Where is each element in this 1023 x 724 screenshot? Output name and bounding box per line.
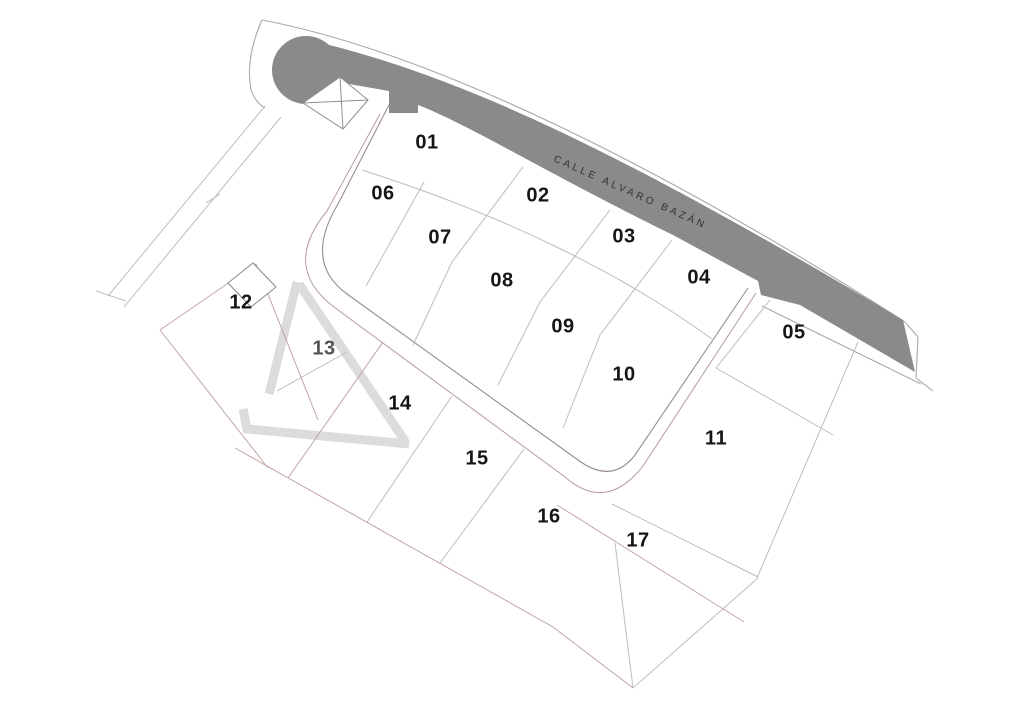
lot-divider-06-07 — [366, 182, 424, 286]
site-plan-drawing: CALLE ALVARO BAZÁN — [0, 0, 1023, 724]
parcel-lines-gray — [96, 106, 858, 688]
street-surface — [272, 36, 915, 372]
street-bulb-outline — [249, 20, 265, 108]
lot13-inner-line — [277, 352, 347, 391]
east-boundary-line — [757, 342, 858, 578]
watermark-right-stroke — [299, 284, 405, 441]
lot-divider-15-16 — [440, 449, 524, 563]
lot-divider-03-04 — [563, 240, 672, 428]
west-strip-line-1 — [108, 106, 265, 296]
watermark-left-stroke — [269, 282, 297, 394]
lot-divider-13-14 — [288, 342, 383, 478]
site-plan: CALLE ALVARO BAZÁN 010203040506070809101… — [0, 0, 1023, 724]
outer-lane-line — [306, 114, 756, 493]
lot12-west-edge — [160, 330, 268, 468]
lane-continuation-north — [612, 504, 758, 577]
lot-divider-04-05 — [716, 300, 770, 368]
watermark-triangle — [243, 282, 409, 444]
southeast-vertex-line — [633, 578, 758, 688]
lot-divider-14-15 — [367, 396, 452, 522]
lot-divider-16-south — [615, 543, 633, 688]
street-tip-outline — [916, 378, 933, 391]
structure-rect — [228, 263, 276, 307]
lot-divider-01-02 — [413, 167, 523, 345]
west-strip-tick — [206, 194, 220, 203]
lot-divider-05-11 — [716, 368, 833, 435]
structure-lot12 — [228, 263, 276, 307]
lane-continuation-south — [557, 505, 744, 622]
lot-divider-02-03 — [498, 210, 610, 385]
parcel-lines-red — [160, 264, 744, 688]
street-band — [299, 38, 915, 372]
